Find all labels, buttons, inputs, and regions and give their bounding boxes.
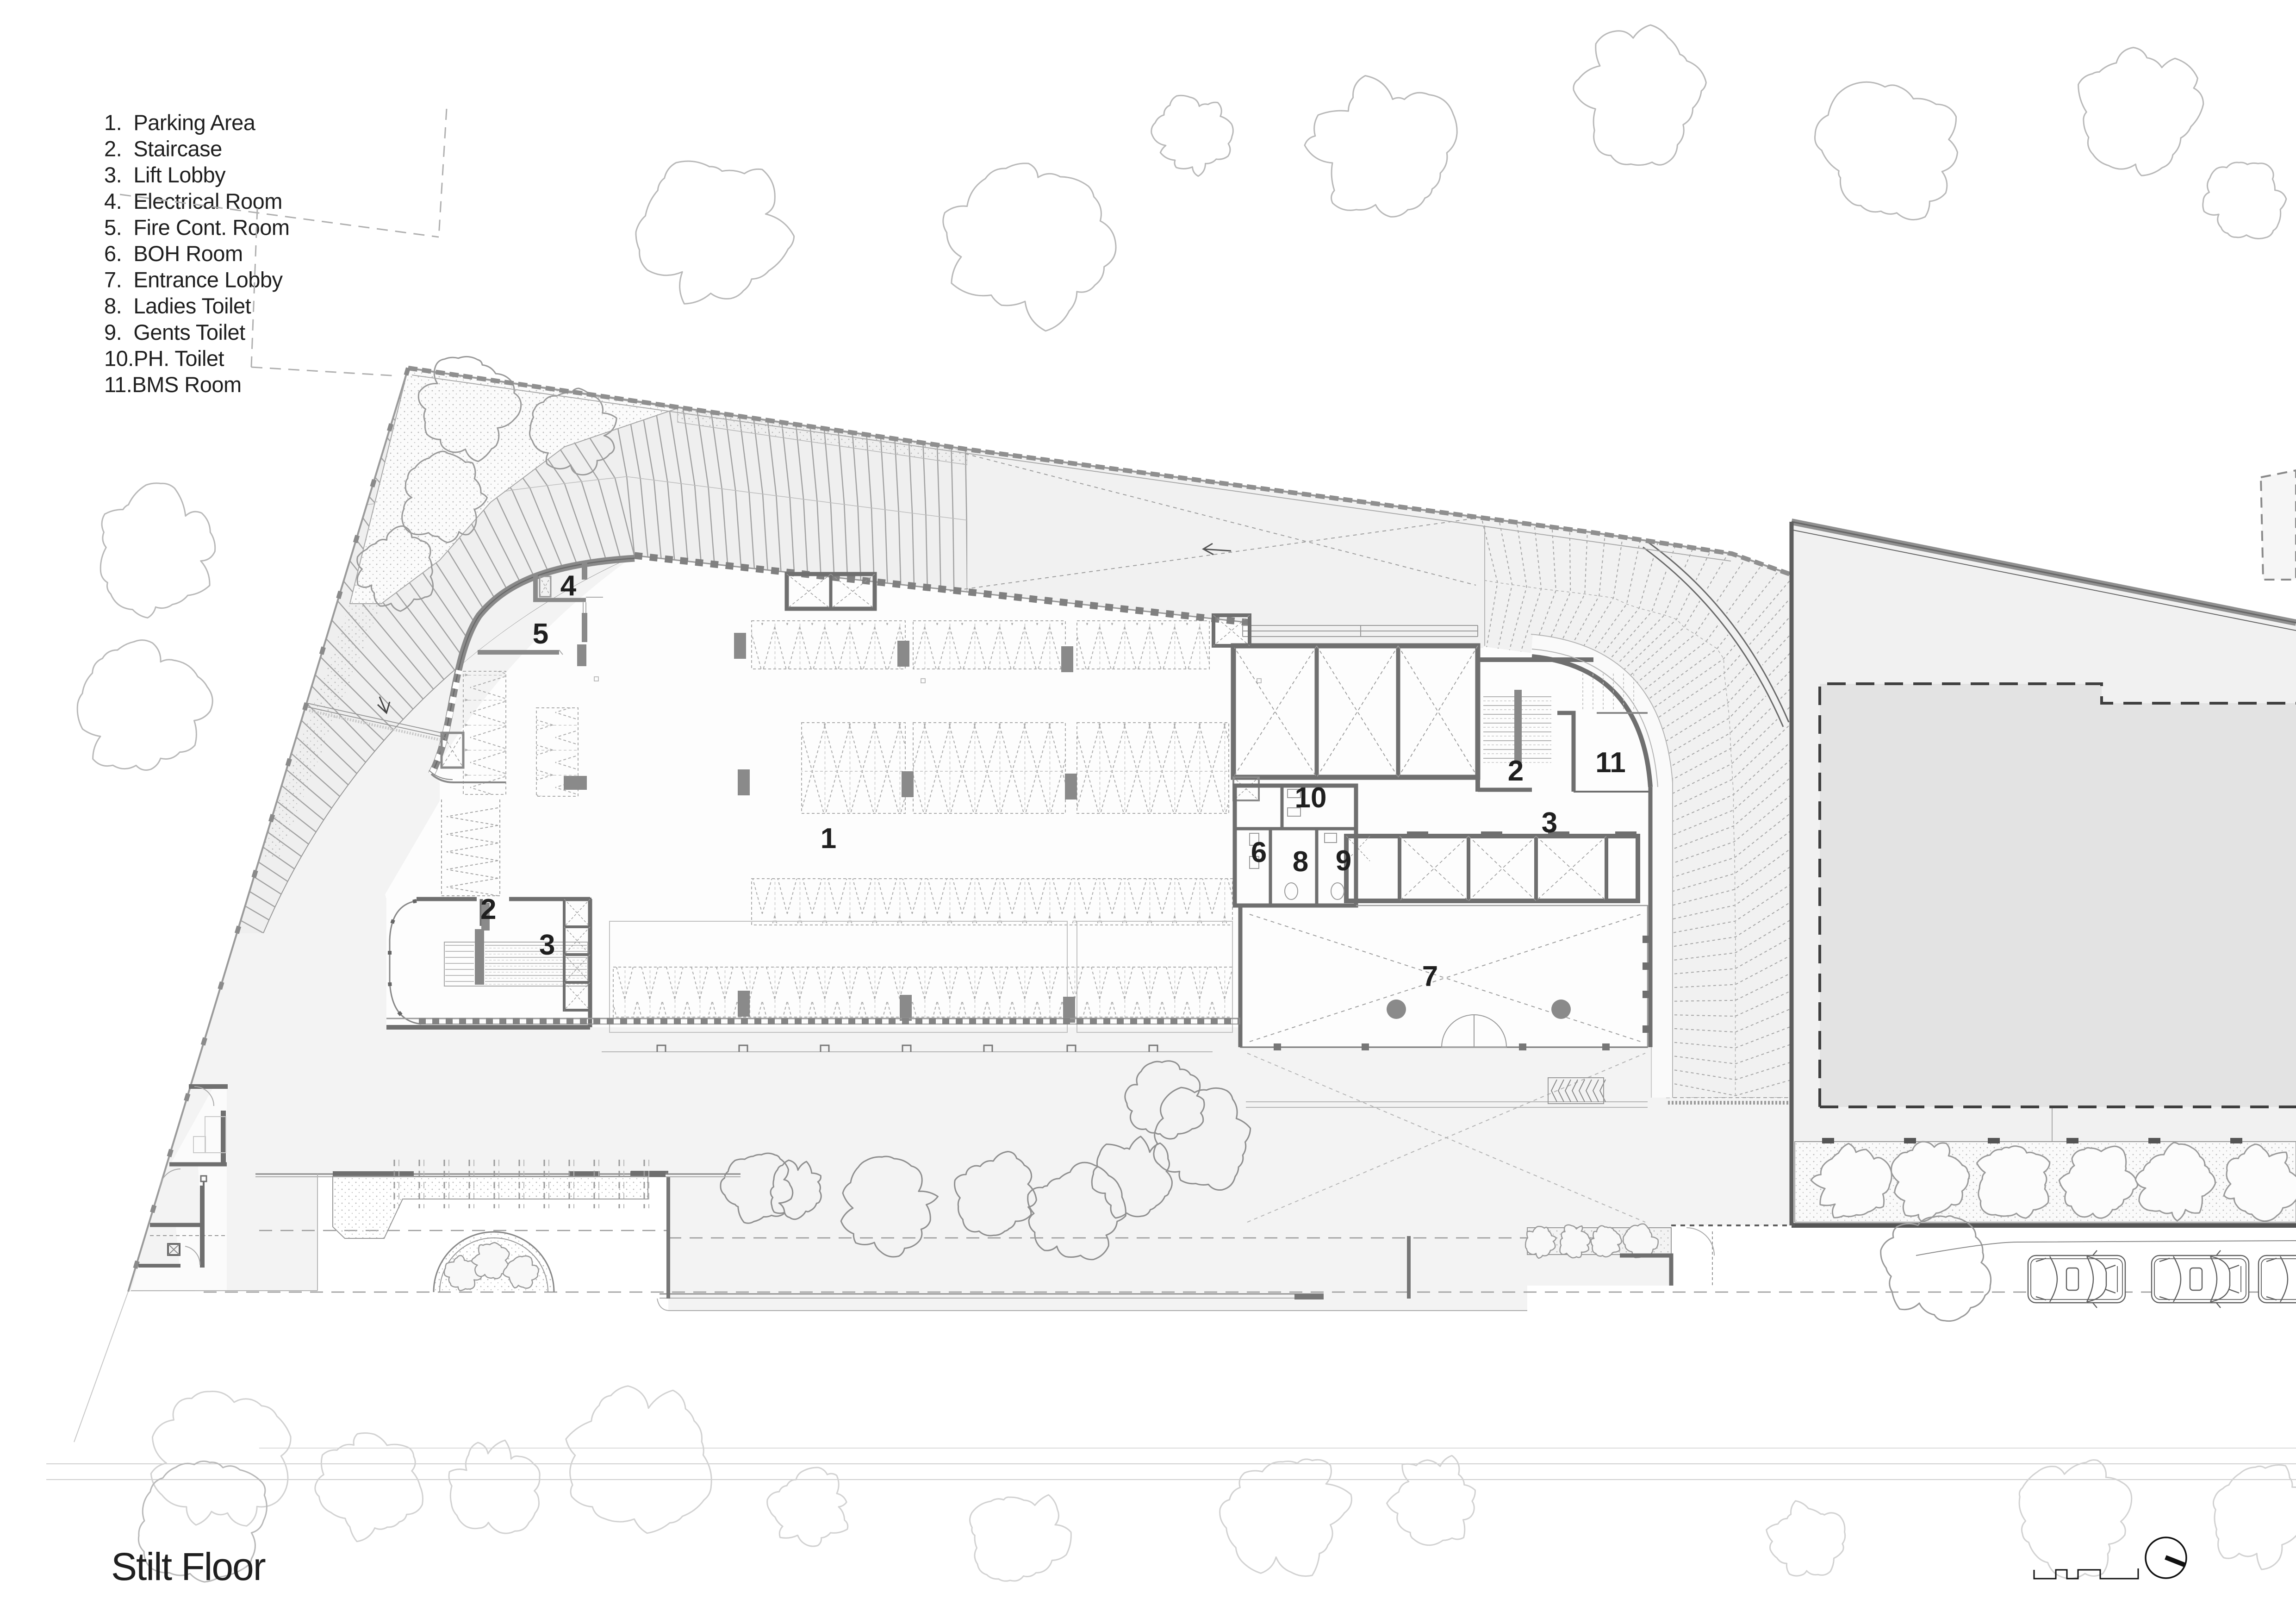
- svg-text:8. Ladies Toilet: 8. Ladies Toilet: [104, 294, 251, 318]
- svg-text:2: 2: [1508, 755, 1524, 787]
- svg-text:1: 1: [821, 823, 836, 855]
- svg-text:9. Gents Toilet: 9. Gents Toilet: [104, 320, 245, 344]
- svg-text:8: 8: [1293, 846, 1308, 878]
- svg-text:1. Parking Area: 1. Parking Area: [104, 110, 256, 135]
- svg-text:10.PH. Toilet: 10.PH. Toilet: [104, 346, 224, 370]
- svg-text:2. Staircase: 2. Staircase: [104, 137, 222, 161]
- svg-text:7: 7: [1422, 961, 1438, 993]
- svg-text:6: 6: [1251, 837, 1267, 868]
- svg-text:3. Lift Lobby: 3. Lift Lobby: [104, 162, 226, 187]
- svg-text:11: 11: [1595, 747, 1626, 779]
- svg-text:11.BMS Room: 11.BMS Room: [104, 372, 242, 397]
- svg-text:6. BOH Room: 6. BOH Room: [104, 241, 243, 266]
- svg-text:Stilt Floor: Stilt Floor: [111, 1545, 266, 1588]
- svg-text:2: 2: [480, 893, 496, 925]
- svg-text:5. Fire Cont. Room: 5. Fire Cont. Room: [104, 215, 290, 239]
- svg-text:4: 4: [560, 570, 577, 602]
- svg-text:3: 3: [1542, 807, 1557, 839]
- svg-text:4. Electrical Room: 4. Electrical Room: [104, 189, 282, 213]
- svg-text:3: 3: [539, 929, 555, 961]
- svg-text:5: 5: [533, 618, 548, 650]
- svg-text:9: 9: [1336, 845, 1351, 877]
- svg-text:7. Entrance Lobby: 7. Entrance Lobby: [104, 268, 283, 292]
- svg-text:10: 10: [1295, 782, 1327, 814]
